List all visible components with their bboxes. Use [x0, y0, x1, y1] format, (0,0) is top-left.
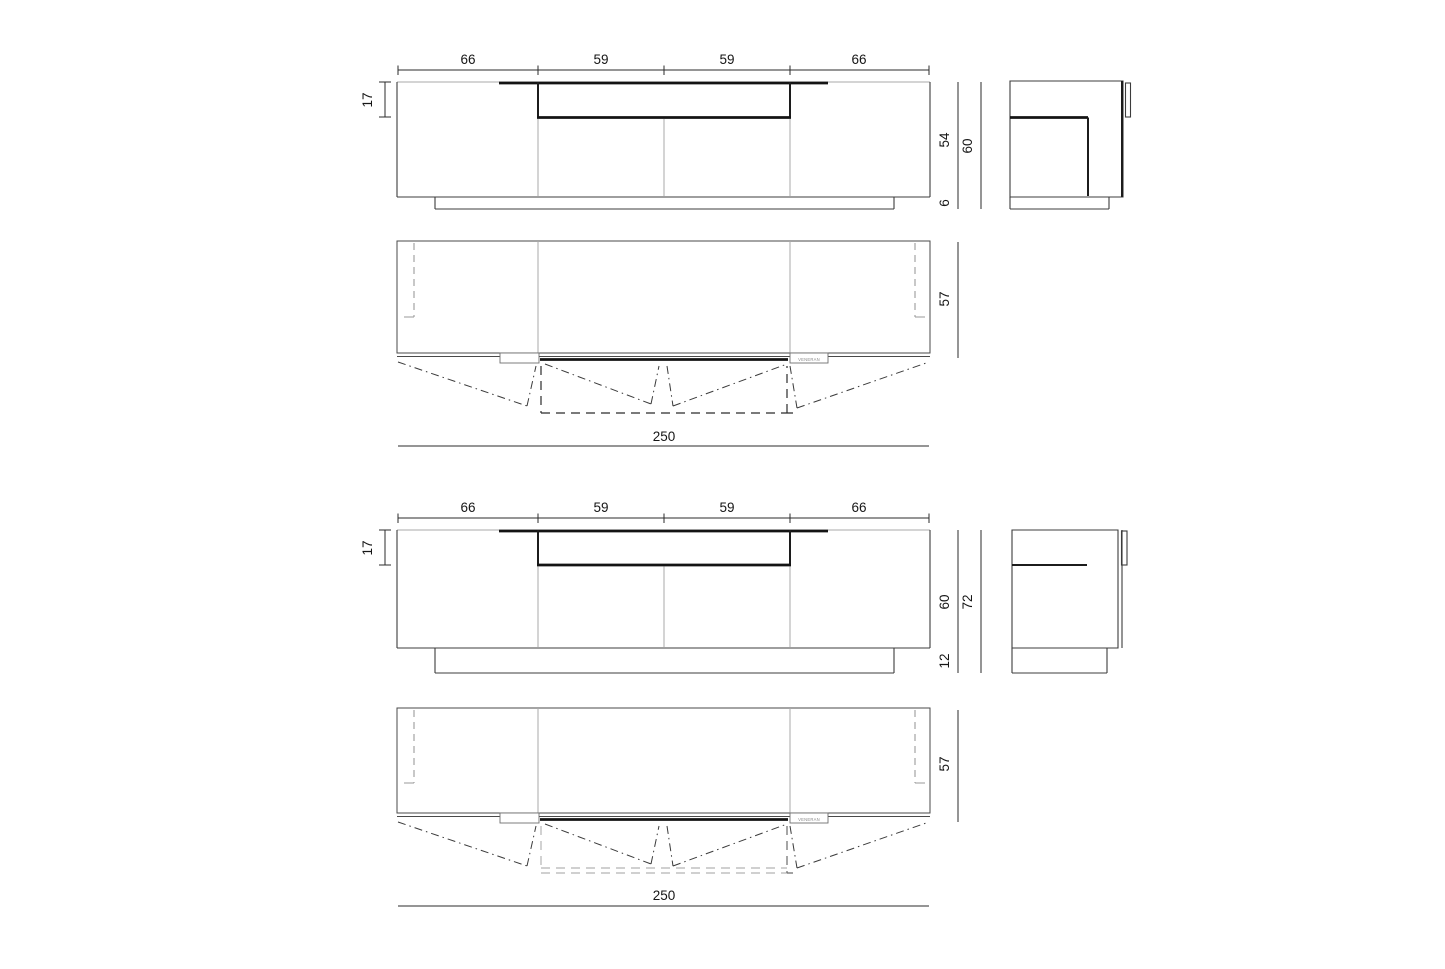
dim-label-total-height: 60: [960, 138, 975, 153]
door-swing-lines: [398, 362, 929, 408]
bottom-plan-view: VENERAN 57 250: [397, 708, 958, 906]
dim-label-width-4: 66: [851, 52, 866, 67]
plinth-outline: [435, 197, 894, 209]
dim-label-width-1: 66: [460, 52, 475, 67]
bottom-front-elevation: 66 59 59 66 17 60 12 72: [360, 500, 981, 673]
top-side-view: [1010, 81, 1131, 209]
plan-left-handle-block: [500, 813, 539, 823]
door-swing-lines: [398, 822, 929, 868]
plan-divider-lines: [538, 241, 790, 353]
dim-label-width-2: 59: [593, 500, 608, 515]
dim-label-niche-depth: 17: [360, 540, 375, 555]
plan-hidden-edges: [414, 710, 915, 783]
plinth-outline: [435, 648, 894, 673]
bottom-side-view: [1012, 530, 1127, 673]
side-plinth-outline: [1012, 648, 1107, 673]
dim-label-body-height: 60: [937, 594, 952, 609]
side-top-strip: [1126, 83, 1131, 117]
dim-label-body-height: 54: [937, 132, 952, 148]
technical-drawing-canvas: 66 59 59 66 17 54 6 60: [0, 0, 1445, 969]
dim-label-width-3: 59: [719, 52, 734, 67]
dim-label-depth: 57: [937, 291, 952, 306]
dim-label-width-3: 59: [719, 500, 734, 515]
niche-depth-dimension-line: [379, 530, 391, 565]
niche-side-edges: [538, 530, 790, 565]
niche-depth-dimension-line: [379, 82, 391, 117]
plan-outline: [397, 241, 930, 353]
door-divider-lines: [538, 119, 790, 196]
door-divider-lines: [538, 567, 790, 648]
plan-outline: [397, 708, 930, 813]
plan-hidden-edges: [414, 243, 915, 317]
niche-side-edges: [538, 82, 790, 118]
dim-label-width-1: 66: [460, 500, 475, 515]
side-body-outline: [1010, 81, 1123, 197]
open-flap-projection-gray: [541, 826, 787, 873]
dim-label-width-2: 59: [593, 52, 608, 67]
open-flap-projection: [541, 366, 793, 413]
open-flap-projection-edge: [787, 826, 793, 873]
side-body-outline: [1012, 530, 1118, 648]
plan-left-handle-block: [500, 353, 539, 363]
brand-label: VENERAN: [798, 817, 820, 822]
width-dimension-line: [398, 66, 929, 76]
technical-drawing-page: 66 59 59 66 17 54 6 60: [0, 0, 1445, 969]
top-front-elevation: 66 59 59 66 17 54 6 60: [360, 52, 981, 209]
top-plan-view: VENERAN 57 250: [397, 241, 958, 446]
plan-divider-lines: [538, 708, 790, 813]
brand-label: VENERAN: [798, 357, 820, 362]
dim-label-total-width: 250: [653, 888, 676, 903]
dim-label-plinth-height: 6: [937, 199, 952, 207]
width-dimension-line: [398, 514, 929, 524]
side-plinth-outline: [1010, 197, 1109, 209]
dim-label-plinth-height: 12: [937, 653, 952, 668]
dim-label-niche-depth: 17: [360, 92, 375, 107]
dim-label-total-width: 250: [653, 429, 676, 444]
dim-label-total-height: 72: [960, 594, 975, 609]
dim-label-depth: 57: [937, 756, 952, 771]
dim-label-width-4: 66: [851, 500, 866, 515]
